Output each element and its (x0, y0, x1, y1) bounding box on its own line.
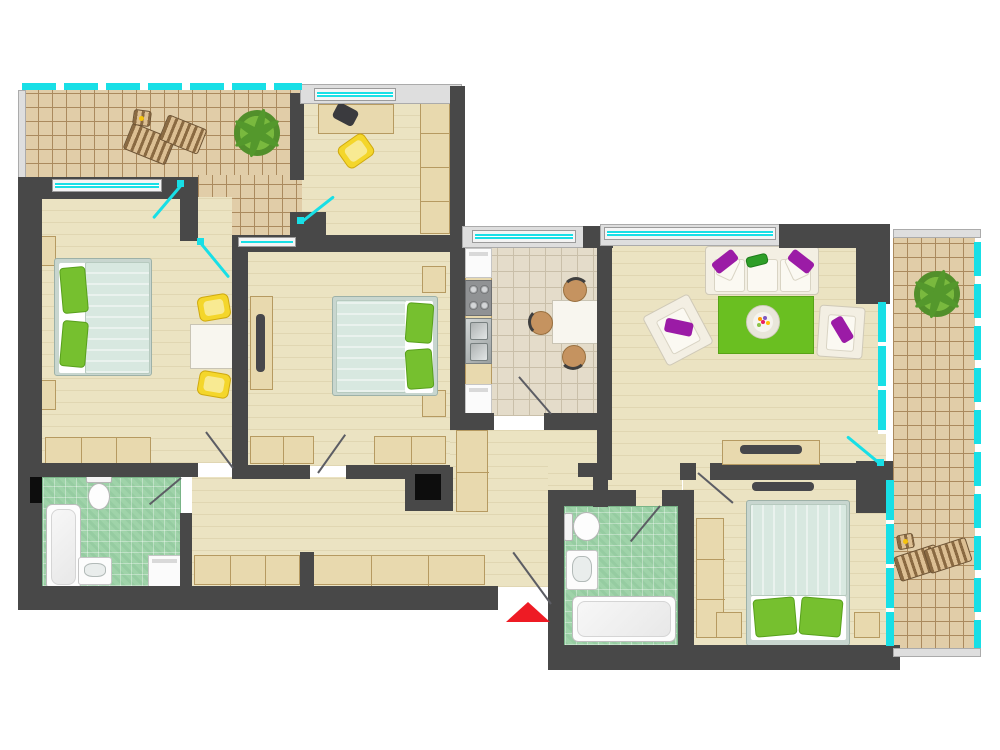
sink (566, 550, 598, 590)
window (314, 88, 396, 101)
bed-pillow (405, 348, 435, 390)
toilet (88, 483, 110, 510)
wall (290, 93, 304, 180)
hall-tall-cabinet (456, 430, 488, 512)
wall (450, 86, 465, 430)
bed-pillow (798, 596, 843, 638)
wall (548, 490, 636, 506)
terrace-railing (974, 242, 981, 648)
bed-pillow (59, 266, 89, 314)
bathtub (46, 504, 81, 590)
coffee-table (746, 305, 780, 339)
tv (752, 482, 814, 491)
wall (678, 490, 694, 652)
terrace-railing (22, 83, 302, 90)
chair-yellow (196, 369, 232, 399)
wall (710, 463, 858, 480)
bed-blanket (750, 504, 847, 596)
wall (300, 552, 314, 586)
bed-pillow (752, 596, 797, 638)
armchair (816, 304, 866, 359)
wardrobe (420, 98, 450, 234)
nightstand (854, 612, 880, 638)
washing-machine (148, 555, 181, 587)
wardrobe (45, 437, 151, 465)
wall (548, 586, 564, 648)
bathtub (572, 596, 676, 642)
bed-double (746, 500, 850, 646)
wall (232, 252, 248, 479)
bed-double (54, 258, 152, 376)
terrace-right-top-edge (893, 229, 981, 238)
tv (740, 445, 802, 454)
hall-cabinet-row (313, 555, 485, 585)
nightstand (716, 612, 742, 638)
tv (256, 314, 265, 372)
chair-brown (529, 311, 553, 335)
sofa (705, 246, 819, 295)
window (604, 227, 776, 240)
glass-wall (878, 302, 886, 434)
wall (180, 513, 192, 587)
shaft (415, 474, 441, 500)
side-table-dot (139, 116, 144, 121)
wall (548, 645, 900, 670)
side-table-dot (903, 539, 908, 544)
entrance-arrow (506, 602, 550, 622)
window (472, 230, 576, 243)
dishwasher (465, 384, 492, 414)
chair-brown (562, 345, 586, 369)
wall (450, 413, 494, 430)
bedroom1-table (190, 324, 238, 369)
wall (856, 246, 890, 304)
shaft (30, 477, 42, 503)
window (52, 179, 162, 192)
nightstand (422, 266, 446, 293)
hall-cabinet-row (194, 555, 300, 585)
plant (914, 271, 960, 317)
terrace-left-edge-wall (18, 90, 26, 179)
wall (18, 586, 498, 610)
wall (680, 463, 696, 480)
stove (465, 280, 492, 316)
dining-table (552, 300, 599, 344)
window (238, 237, 296, 247)
bed-blanket (85, 262, 150, 374)
wall (18, 177, 42, 610)
chair-brown (563, 278, 587, 302)
bed-double (332, 296, 438, 396)
wall (248, 465, 310, 479)
glass-wall (886, 480, 894, 646)
kitchen-sink (465, 318, 492, 364)
wall (42, 463, 180, 477)
bed-pillow (59, 320, 89, 368)
wall (180, 463, 198, 477)
floor-plan (0, 0, 1000, 750)
toilet-tank (564, 513, 573, 541)
bed-blanket (336, 300, 406, 393)
sink (78, 557, 112, 585)
bed-pillow (405, 302, 435, 344)
wall (779, 224, 890, 248)
terrace-right-bottom-edge (893, 648, 981, 657)
plant (234, 110, 280, 156)
wall (597, 244, 612, 480)
fridge (465, 248, 492, 278)
toilet (573, 512, 600, 541)
wardrobe (374, 436, 446, 464)
wardrobe (250, 436, 314, 464)
